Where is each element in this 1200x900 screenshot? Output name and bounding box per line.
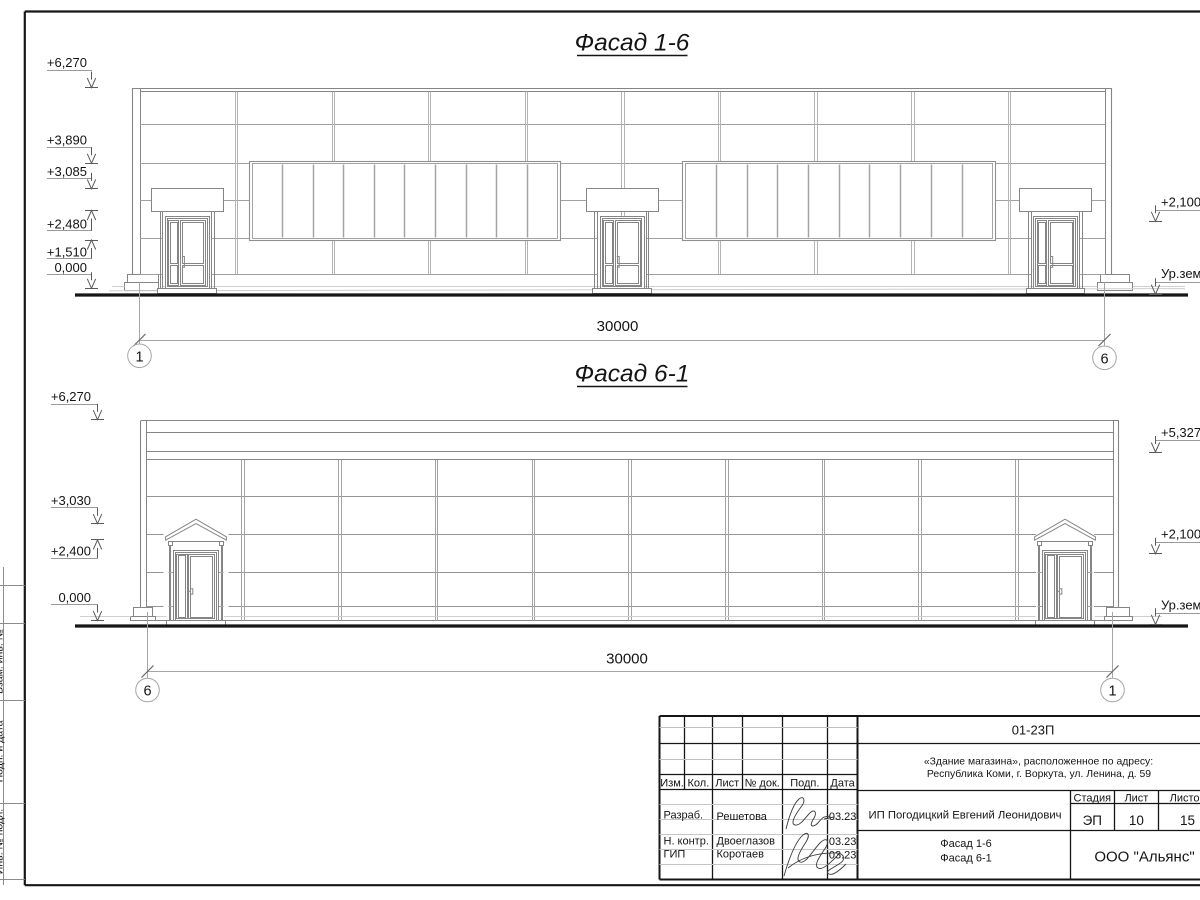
- svg-text:Инв. № подл.: Инв. № подл.: [0, 809, 6, 874]
- svg-text:03.23: 03.23: [829, 836, 857, 848]
- svg-text:30000: 30000: [606, 651, 648, 668]
- svg-text:+2,100: +2,100: [1161, 194, 1200, 209]
- svg-text:Фасад 1-6: Фасад 1-6: [940, 838, 991, 850]
- svg-text:Ур.зем.: Ур.зем.: [1161, 598, 1200, 613]
- svg-text:ИП Погодицкий Евгений Леонидов: ИП Погодицкий Евгений Леонидович: [868, 810, 1061, 822]
- svg-text:Взам. инв. №: Взам. инв. №: [0, 629, 6, 694]
- svg-text:Двоеглазов: Двоеглазов: [717, 835, 776, 847]
- svg-text:0,000: 0,000: [58, 590, 91, 605]
- svg-text:Н. контр.: Н. контр.: [664, 835, 709, 847]
- svg-text:+2,400: +2,400: [51, 544, 91, 559]
- svg-text:+6,270: +6,270: [51, 389, 91, 404]
- svg-text:Коротаев: Коротаев: [717, 849, 765, 861]
- svg-text:Фасад 6-1: Фасад 6-1: [575, 361, 690, 388]
- svg-text:Лист: Лист: [1124, 792, 1148, 804]
- svg-text:6: 6: [143, 684, 151, 700]
- svg-text:«Здание магазина», расположенн: «Здание магазина», расположенное по адре…: [924, 757, 1153, 768]
- svg-text:+6,270: +6,270: [47, 55, 87, 70]
- svg-text:ЭП: ЭП: [1083, 813, 1102, 828]
- svg-text:1: 1: [135, 349, 143, 365]
- svg-text:1: 1: [1108, 684, 1116, 700]
- svg-text:Подп.: Подп.: [790, 778, 819, 790]
- svg-text:+2,100: +2,100: [1161, 527, 1200, 542]
- svg-text:ГИП: ГИП: [664, 849, 686, 861]
- svg-text:30000: 30000: [597, 318, 639, 335]
- svg-text:+3,890: +3,890: [47, 132, 87, 147]
- svg-text:10: 10: [1129, 813, 1144, 828]
- svg-text:Лист: Лист: [715, 778, 739, 790]
- svg-text:№ док.: № док.: [745, 778, 780, 790]
- svg-text:15: 15: [1180, 813, 1195, 828]
- svg-text:+3,085: +3,085: [47, 164, 87, 179]
- svg-text:Республика Коми, г. Воркута, у: Республика Коми, г. Воркута, ул. Ленина,…: [927, 768, 1151, 780]
- svg-text:ООО "Альянс": ООО "Альянс": [1094, 848, 1194, 865]
- svg-text:01-23П: 01-23П: [1012, 723, 1055, 738]
- svg-text:Подп. и дата: Подп. и дата: [0, 720, 6, 782]
- svg-text:Фасад 6-1: Фасад 6-1: [940, 852, 991, 864]
- svg-text:Изм.: Изм.: [660, 778, 684, 790]
- svg-text:0,000: 0,000: [54, 260, 87, 275]
- svg-text:Дата: Дата: [830, 778, 855, 790]
- svg-text:+5,327: +5,327: [1161, 425, 1200, 440]
- svg-text:6: 6: [1100, 351, 1108, 367]
- svg-text:Фасад 1-6: Фасад 1-6: [575, 30, 690, 57]
- svg-text:Стадия: Стадия: [1074, 792, 1112, 804]
- svg-text:Листов: Листов: [1170, 792, 1200, 804]
- svg-text:+1,510: +1,510: [47, 244, 87, 259]
- svg-text:Кол.: Кол.: [688, 778, 710, 790]
- svg-text:Разраб.: Разраб.: [664, 810, 704, 822]
- svg-text:Решетова: Решетова: [717, 811, 768, 823]
- svg-text:+2,480: +2,480: [47, 217, 87, 232]
- svg-text:Ур.зем.: Ур.зем.: [1161, 266, 1200, 281]
- svg-text:+3,030: +3,030: [51, 493, 91, 508]
